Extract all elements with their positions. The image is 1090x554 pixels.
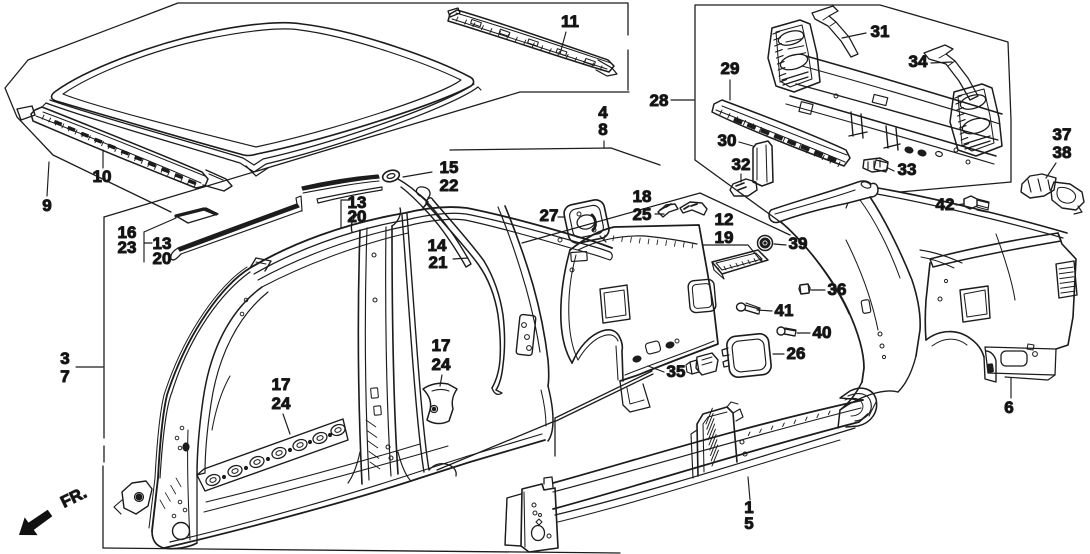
svg-text:6: 6 <box>1004 398 1013 417</box>
svg-text:27: 27 <box>540 206 559 225</box>
svg-text:7: 7 <box>60 367 69 386</box>
svg-text:8: 8 <box>598 120 607 139</box>
svg-text:9: 9 <box>42 196 51 215</box>
svg-text:42: 42 <box>936 195 955 214</box>
svg-text:21: 21 <box>429 253 448 272</box>
svg-text:26: 26 <box>787 344 806 363</box>
svg-text:18: 18 <box>633 187 652 206</box>
svg-text:30: 30 <box>718 131 737 150</box>
svg-text:24: 24 <box>432 355 451 374</box>
svg-text:35: 35 <box>667 362 686 381</box>
svg-text:17: 17 <box>432 336 451 355</box>
svg-text:17: 17 <box>272 375 291 394</box>
svg-text:12: 12 <box>715 210 734 229</box>
svg-text:36: 36 <box>828 280 847 299</box>
svg-text:34: 34 <box>909 52 928 71</box>
svg-text:28: 28 <box>650 91 669 110</box>
svg-text:39: 39 <box>789 234 808 253</box>
svg-text:20: 20 <box>348 207 367 226</box>
svg-text:23: 23 <box>118 238 137 257</box>
svg-text:38: 38 <box>1053 143 1072 162</box>
svg-text:3: 3 <box>60 349 69 368</box>
svg-text:32: 32 <box>732 155 751 174</box>
svg-text:22: 22 <box>440 176 459 195</box>
svg-text:31: 31 <box>871 22 890 41</box>
svg-text:40: 40 <box>813 323 832 342</box>
svg-text:24: 24 <box>272 394 291 413</box>
svg-text:33: 33 <box>898 160 917 179</box>
svg-text:11: 11 <box>561 12 579 31</box>
svg-text:5: 5 <box>744 514 753 533</box>
svg-text:41: 41 <box>775 301 794 320</box>
svg-text:10: 10 <box>93 167 112 186</box>
svg-text:15: 15 <box>440 158 459 177</box>
svg-text:29: 29 <box>721 59 740 78</box>
svg-text:20: 20 <box>153 249 172 268</box>
svg-text:25: 25 <box>633 205 652 224</box>
svg-text:37: 37 <box>1053 125 1072 144</box>
svg-text:19: 19 <box>715 228 734 247</box>
